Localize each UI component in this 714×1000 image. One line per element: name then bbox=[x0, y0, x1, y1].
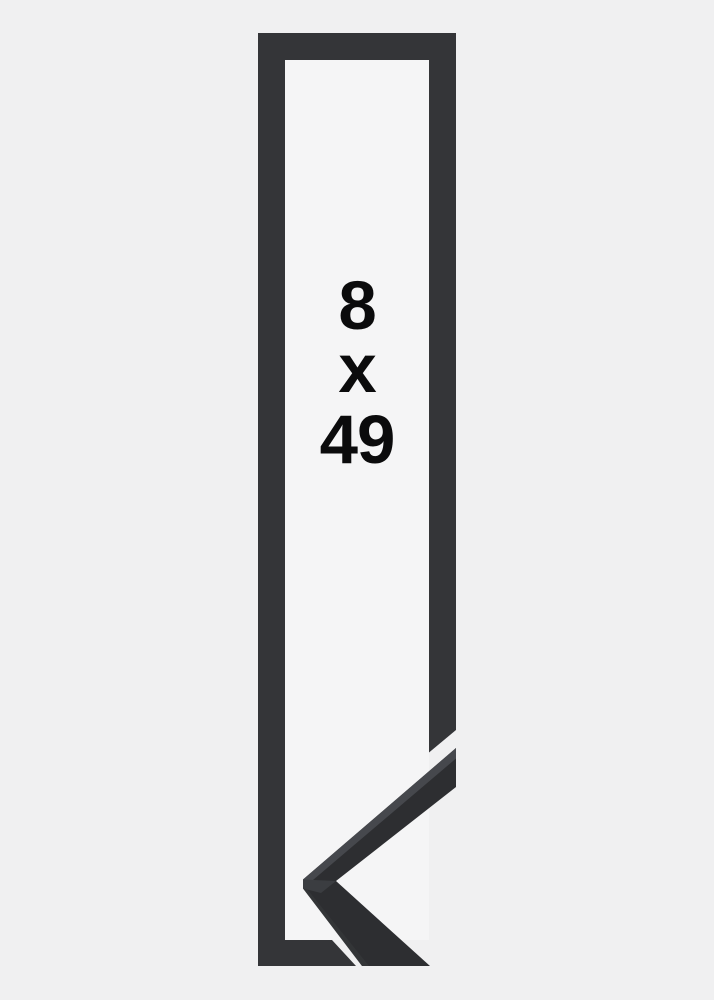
frame-product-image: 8 x 49 bbox=[0, 0, 714, 1000]
dimension-height-value: 49 bbox=[320, 401, 395, 478]
dimension-separator: x bbox=[338, 330, 376, 407]
frame-size-diagram: 8 x 49 bbox=[0, 0, 714, 1000]
